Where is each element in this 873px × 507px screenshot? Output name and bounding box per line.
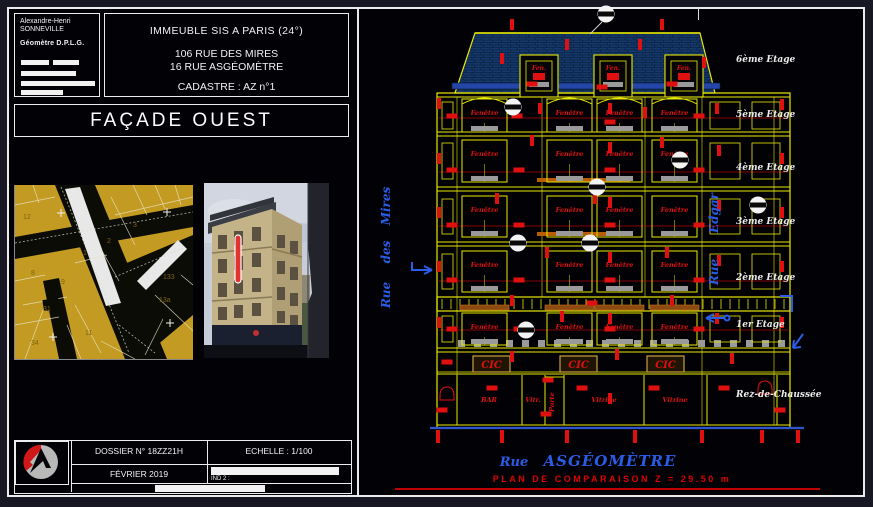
drawing-title-box: FAÇADE OUEST bbox=[14, 104, 349, 137]
window-sill bbox=[556, 231, 583, 236]
parcel-number: 13a bbox=[159, 297, 171, 304]
survey-marker bbox=[605, 223, 616, 228]
window-label: Fenêtre bbox=[555, 150, 584, 158]
dormer-marker bbox=[607, 73, 619, 80]
survey-marker bbox=[530, 135, 534, 146]
window-label: Fenêtre bbox=[470, 261, 499, 269]
survey-marker bbox=[608, 197, 612, 208]
window-label: Fenêtre bbox=[555, 323, 584, 331]
survey-marker bbox=[730, 353, 734, 364]
floor-label: 6ème Etage bbox=[736, 54, 796, 65]
redacted-text-bar bbox=[21, 81, 95, 86]
ground-tick bbox=[565, 430, 569, 443]
panel-divider-line bbox=[357, 7, 359, 497]
survey-marker bbox=[605, 120, 616, 125]
survey-marker bbox=[719, 386, 730, 391]
parcel-number: 133 bbox=[163, 274, 175, 281]
survey-marker bbox=[510, 295, 514, 306]
level-target-band bbox=[582, 241, 598, 246]
facade-windows: FenêtreFenêtreFenêtreFenêtreFenêtreFenêt… bbox=[442, 98, 780, 345]
window-sill bbox=[606, 231, 633, 236]
facade-elevation-drawing: Fen.Fen.Fen. FenêtreFenêtreFenêtreFenêtr… bbox=[362, 0, 873, 507]
ground-tick bbox=[700, 430, 704, 443]
survey-marker bbox=[608, 142, 612, 153]
survey-marker bbox=[702, 57, 706, 68]
roof-dormers: Fen.Fen.Fen. bbox=[520, 55, 703, 97]
survey-marker bbox=[514, 223, 525, 228]
survey-marker bbox=[694, 327, 705, 332]
survey-marker bbox=[447, 168, 458, 173]
survey-marker bbox=[510, 351, 514, 362]
survey-marker bbox=[437, 153, 441, 164]
window-label: Fenêtre bbox=[660, 261, 689, 269]
level-target-band bbox=[750, 203, 766, 208]
survey-marker bbox=[543, 378, 554, 383]
survey-marker bbox=[665, 247, 669, 258]
shop-label: Vitrine bbox=[591, 396, 616, 404]
author-block: Alexandre-Henri SONNEVILLE Géomètre D.P.… bbox=[14, 13, 100, 97]
parcel-number: 34 bbox=[31, 340, 39, 347]
cadastre-map-image: 121238931113413313a bbox=[15, 185, 193, 359]
window-sill bbox=[606, 126, 633, 131]
shop-label: Vitr. bbox=[525, 396, 541, 404]
company-logo bbox=[16, 442, 66, 482]
modillion bbox=[522, 340, 529, 347]
project-title: IMMEUBLE SIS A PARIS (24°) bbox=[105, 25, 348, 37]
project-title-block: IMMEUBLE SIS A PARIS (24°) 106 RUE DES M… bbox=[104, 13, 349, 97]
window-lintel bbox=[650, 305, 699, 310]
dormer-label: Fen. bbox=[605, 65, 620, 72]
survey-marker bbox=[667, 82, 678, 87]
project-address-1: 106 RUE DES MIRES bbox=[105, 48, 348, 60]
ind-label: IND 2 : bbox=[211, 476, 230, 482]
floor-label: 1er Etage bbox=[736, 320, 785, 330]
survey-marker bbox=[447, 278, 458, 283]
floor-label: 2ème Etage bbox=[735, 272, 796, 283]
window-lintel bbox=[460, 305, 509, 310]
survey-marker bbox=[538, 103, 542, 114]
survey-marker bbox=[638, 39, 642, 50]
scale-value: ECHELLE : 1/100 bbox=[208, 446, 350, 456]
survey-marker bbox=[660, 19, 664, 30]
survey-marker bbox=[608, 252, 612, 263]
narrow-window bbox=[752, 143, 780, 179]
window-sill bbox=[606, 286, 633, 291]
survey-marker bbox=[447, 223, 458, 228]
ground-tick bbox=[500, 430, 504, 443]
window-label: Fenêtre bbox=[470, 323, 499, 331]
ground-survey-ticks bbox=[436, 430, 800, 443]
redacted-text-bar bbox=[155, 485, 265, 492]
level-target-band bbox=[672, 158, 688, 163]
project-cadastre: CADASTRE : AZ n°1 bbox=[105, 81, 348, 93]
survey-marker bbox=[487, 386, 498, 391]
survey-marker bbox=[514, 278, 525, 283]
parcel-number: 3 bbox=[133, 222, 137, 229]
shop-label: Vitrine bbox=[662, 396, 687, 404]
narrow-window bbox=[752, 254, 780, 289]
author-name-line1: Alexandre-Henri bbox=[20, 18, 94, 26]
dormer-label: Fen. bbox=[531, 65, 546, 72]
window-sill bbox=[556, 126, 583, 131]
date-value: FÉVRIER 2019 bbox=[72, 469, 206, 479]
tb-grid-line bbox=[71, 464, 351, 465]
survey-marker bbox=[615, 349, 619, 360]
floor-label: 3ème Etage bbox=[736, 216, 796, 227]
modillion bbox=[650, 340, 657, 347]
survey-marker bbox=[670, 295, 674, 306]
survey-marker bbox=[694, 168, 705, 173]
level-target-band bbox=[505, 105, 521, 110]
window-label: Fenêtre bbox=[470, 150, 499, 158]
drawing-title: FAÇADE OUEST bbox=[90, 110, 273, 132]
title-block: DOSSIER N° 18ZZ21H ECHELLE : 1/100 FÉVRI… bbox=[14, 440, 352, 494]
window-sill bbox=[556, 339, 583, 344]
lamp-icon bbox=[440, 387, 454, 400]
parcel-number: 9 bbox=[61, 279, 65, 286]
ground-tick bbox=[760, 430, 764, 443]
survey-marker bbox=[717, 145, 721, 156]
parcel-number: 31 bbox=[43, 306, 51, 313]
survey-marker bbox=[605, 327, 616, 332]
window-sill bbox=[661, 231, 688, 236]
survey-marker bbox=[608, 393, 612, 404]
street-name-bottom: ASGÉOMÈTRE bbox=[542, 452, 677, 470]
building-photo-image bbox=[204, 183, 329, 358]
street-name-right: Rue bbox=[707, 258, 721, 286]
window-label: Fenêtre bbox=[555, 261, 584, 269]
level-target-band bbox=[598, 12, 614, 17]
narrow-window bbox=[710, 143, 740, 179]
shop-label: BAR bbox=[480, 396, 498, 404]
survey-marker bbox=[437, 98, 441, 109]
survey-marker bbox=[514, 168, 525, 173]
window-sill bbox=[556, 176, 583, 181]
survey-marker bbox=[780, 261, 784, 272]
modillion bbox=[730, 340, 737, 347]
author-name-line2: SONNEVILLE bbox=[20, 26, 94, 34]
survey-marker bbox=[500, 53, 504, 64]
window-label: Fenêtre bbox=[660, 206, 689, 214]
window-sill bbox=[471, 286, 498, 291]
window-sill bbox=[661, 339, 688, 344]
dossier-number: DOSSIER N° 18ZZ21H bbox=[72, 446, 206, 456]
street-name-right: Edgar bbox=[707, 191, 721, 234]
window-label: Fenêtre bbox=[470, 206, 499, 214]
window-sill bbox=[471, 126, 498, 131]
survey-marker bbox=[545, 247, 549, 258]
window-sill bbox=[661, 126, 688, 131]
street-name-left: Rue bbox=[379, 281, 393, 309]
survey-marker bbox=[775, 408, 786, 413]
street-name-left: Mires bbox=[379, 186, 393, 226]
survey-marker bbox=[608, 313, 612, 324]
ground-tick bbox=[436, 430, 440, 443]
level-target-band bbox=[510, 241, 526, 246]
narrow-window bbox=[442, 199, 453, 234]
shop-sign-text: CIC bbox=[568, 360, 589, 371]
survey-marker bbox=[577, 386, 588, 391]
window-label: Fenêtre bbox=[660, 323, 689, 331]
modillion bbox=[778, 340, 785, 347]
modillion bbox=[538, 340, 545, 347]
survey-marker bbox=[527, 82, 538, 87]
ground-tick bbox=[796, 430, 800, 443]
survey-marker bbox=[643, 107, 647, 118]
shop-sign-text: CIC bbox=[655, 360, 676, 371]
survey-marker bbox=[694, 223, 705, 228]
floor-label: 4ème Etage bbox=[736, 162, 796, 173]
survey-marker bbox=[437, 408, 448, 413]
survey-marker bbox=[541, 412, 552, 417]
street-name-bottom-rue: Rue bbox=[499, 455, 529, 470]
parcel-number: 2 bbox=[107, 238, 111, 245]
survey-marker bbox=[437, 207, 441, 218]
survey-marker bbox=[605, 278, 616, 283]
survey-marker bbox=[560, 311, 564, 322]
survey-marker bbox=[694, 114, 705, 119]
author-title: Géomètre D.P.L.G. bbox=[20, 40, 94, 48]
comparison-plane-label: PLAN DE COMPARAISON Z = 29.50 m bbox=[493, 474, 732, 484]
window-sill bbox=[471, 339, 498, 344]
ground-tick bbox=[633, 430, 637, 443]
survey-marker bbox=[495, 193, 499, 204]
window-sill bbox=[556, 286, 583, 291]
dormer-marker bbox=[533, 73, 545, 80]
level-target-band bbox=[518, 328, 534, 333]
survey-marker bbox=[510, 19, 514, 30]
modillion bbox=[634, 340, 641, 347]
survey-marker bbox=[587, 301, 598, 306]
dormer-label: Fen. bbox=[676, 65, 691, 72]
window-sill bbox=[661, 176, 688, 181]
shop-signs: CICCICCIC bbox=[473, 356, 684, 372]
street-name-left: des bbox=[379, 240, 393, 263]
survey-marker bbox=[649, 386, 660, 391]
survey-marker bbox=[660, 137, 664, 148]
redacted-text-bar bbox=[21, 90, 63, 95]
redacted-text-bar bbox=[53, 60, 79, 65]
survey-marker bbox=[715, 103, 719, 114]
parcel-number: 11 bbox=[85, 330, 92, 337]
floor-label: 5ème Etage bbox=[736, 109, 796, 120]
survey-marker bbox=[694, 278, 705, 283]
leader-line bbox=[590, 22, 602, 34]
window-label: Fenêtre bbox=[555, 109, 584, 117]
logo-box bbox=[15, 441, 69, 485]
level-target-band bbox=[589, 185, 605, 190]
window-lintel bbox=[595, 305, 644, 310]
window-sill bbox=[471, 231, 498, 236]
survey-marker bbox=[447, 327, 458, 332]
narrow-window bbox=[442, 143, 453, 179]
survey-marker bbox=[565, 39, 569, 50]
window-sill bbox=[606, 176, 633, 181]
redacted-text-bar bbox=[211, 467, 339, 475]
floor-label: Rez-de-Chaussée bbox=[735, 389, 822, 400]
modillion bbox=[762, 340, 769, 347]
building-photo bbox=[204, 183, 329, 358]
parcel-number: 8 bbox=[31, 270, 35, 277]
tb-grid-line bbox=[71, 483, 351, 484]
window-label: Fenêtre bbox=[470, 109, 499, 117]
window-sill bbox=[471, 176, 498, 181]
cadastre-map: 121238931113413313a bbox=[14, 185, 193, 360]
survey-marker bbox=[597, 85, 608, 90]
window-lintel bbox=[545, 305, 594, 310]
survey-marker bbox=[437, 317, 441, 328]
redacted-text-bar bbox=[21, 60, 49, 65]
dormer-marker bbox=[678, 73, 690, 80]
survey-marker bbox=[437, 261, 441, 272]
modillion bbox=[714, 340, 721, 347]
survey-marker bbox=[442, 360, 453, 365]
window-sill bbox=[661, 286, 688, 291]
modillion bbox=[698, 340, 705, 347]
shop-sign-text: CIC bbox=[481, 360, 502, 371]
shop-label: Porte bbox=[548, 392, 556, 413]
cad-drawing-sheet: Alexandre-Henri SONNEVILLE Géomètre D.P.… bbox=[0, 0, 873, 507]
survey-marker bbox=[608, 103, 612, 114]
window-sill bbox=[606, 339, 633, 344]
survey-marker bbox=[780, 99, 784, 110]
redacted-text-bar bbox=[21, 71, 76, 76]
parcel-number: 12 bbox=[23, 214, 31, 221]
parcel-number: 1 bbox=[83, 250, 87, 257]
project-address-2: 16 RUE ASGÉOMÈTRE bbox=[105, 61, 348, 73]
window-label: Fenêtre bbox=[660, 109, 689, 117]
survey-marker bbox=[605, 168, 616, 173]
window-label: Fenêtre bbox=[555, 206, 584, 214]
narrow-window bbox=[442, 254, 453, 289]
survey-marker bbox=[447, 114, 458, 119]
